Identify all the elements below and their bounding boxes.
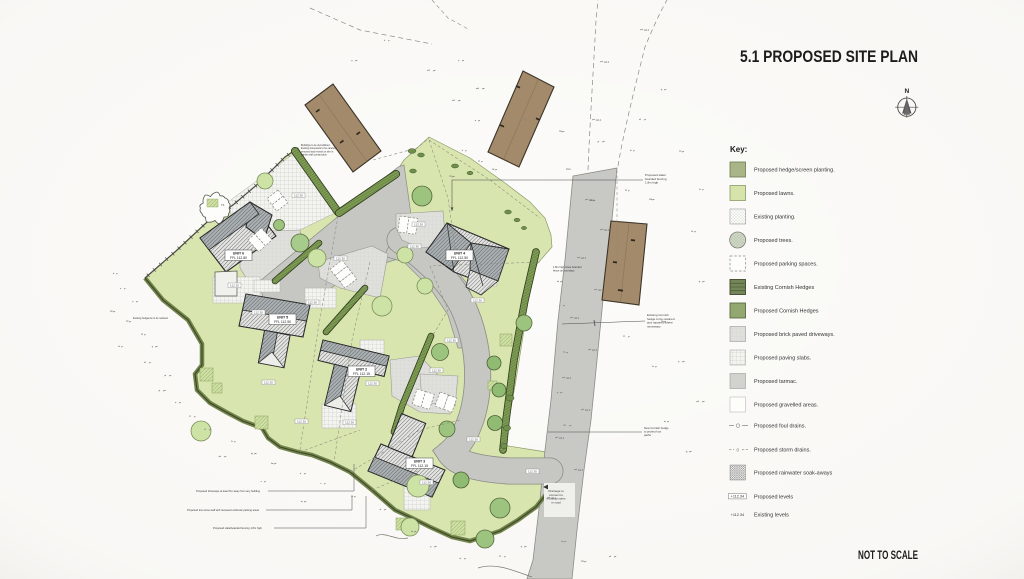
svg-text:112.30: 112.30 [414,223,423,227]
svg-text:Proposed gravelled areas.: Proposed gravelled areas. [754,403,819,409]
svg-text:T1: T1 [221,203,225,207]
svg-text:+112.34: +112.34 [731,513,745,517]
svg-text:112.4: 112.4 [574,318,580,320]
svg-text:FFL 112.15: FFL 112.15 [411,464,428,468]
svg-text:Existing levels: Existing levels [754,513,789,519]
svg-text:FFL 112.50: FFL 112.50 [451,256,468,260]
svg-text:112.30: 112.30 [447,339,456,343]
svg-text:Proposed levels: Proposed levels [754,495,793,501]
svg-text:Proposed Cornish Hedges: Proposed Cornish Hedges [754,309,819,315]
svg-text:Existing planting.: Existing planting. [754,215,796,221]
svg-text:112.4: 112.4 [581,258,587,260]
svg-text:Proposed rainwater soak-aways: Proposed rainwater soak-aways [754,471,833,477]
svg-text:112.30: 112.30 [432,369,441,373]
svg-text:Proposed slate/boarded fencing: Proposed slate/boarded fencing 1.8m high [213,526,262,530]
svg-text:112.4: 112.4 [592,350,598,352]
svg-text:Proposed foul drains.: Proposed foul drains. [754,424,806,430]
svg-text:112.4: 112.4 [604,230,610,232]
svg-text:FFL 112.50: FFL 112.50 [274,320,291,324]
svg-text:FFL 112.15: FFL 112.15 [353,372,370,376]
svg-text:112.4: 112.4 [589,200,595,202]
svg-text:Proposed brick paved driveways: Proposed brick paved driveways. [754,332,835,338]
svg-text:112.4: 112.4 [604,62,610,64]
svg-text:112.4: 112.4 [596,120,602,122]
svg-text:Proposed storm drains.: Proposed storm drains. [754,448,811,454]
svg-text:NOT TO SCALE: NOT TO SCALE [858,550,918,562]
svg-text:Proposed lawns.: Proposed lawns. [754,191,795,197]
svg-text:112.30: 112.30 [308,301,317,305]
svg-text:Existing hedgerow to be retain: Existing hedgerow to be retained [133,317,168,320]
svg-text:112.30: 112.30 [528,470,537,474]
svg-text:112.30: 112.30 [336,257,345,261]
svg-text:112.30: 112.30 [264,381,273,385]
svg-text:112.30: 112.30 [469,438,478,442]
svg-text:112.4: 112.4 [566,378,572,380]
svg-text:Ctu: Ctu [566,167,571,171]
svg-text:Proposed low stone wall with r: Proposed low stone wall with recessed ve… [187,508,260,512]
svg-text:112.30: 112.30 [473,299,482,303]
svg-text:112.30: 112.30 [345,421,354,425]
svg-text:Proposed trees.: Proposed trees. [754,238,793,244]
svg-text:Proposed driveways at least 5m: Proposed driveways at least 5m away from… [196,489,261,493]
svg-text:112.4: 112.4 [559,438,565,440]
svg-text:Proposed paving slabs.: Proposed paving slabs. [754,356,812,362]
svg-text:112.4: 112.4 [551,498,557,500]
svg-text:Key:: Key: [730,145,747,154]
svg-text:Existing Cornish Hedges: Existing Cornish Hedges [754,285,814,291]
svg-text:Proposed parking spaces.: Proposed parking spaces. [754,262,818,268]
svg-text:112.30: 112.30 [230,284,239,288]
svg-text:112.30: 112.30 [297,420,306,424]
svg-text:FFL 112.80: FFL 112.80 [230,256,247,260]
svg-text:112.30: 112.30 [422,481,431,485]
svg-text:5.1 PROPOSED SITE PLAN: 5.1 PROPOSED SITE PLAN [740,47,918,66]
svg-text:Proposed hedge/screen planting: Proposed hedge/screen planting. [754,168,835,174]
svg-text:+112.34: +112.34 [731,495,745,499]
svg-text:112.30: 112.30 [368,382,377,386]
svg-text:0: 0 [737,448,740,453]
svg-text:112.30: 112.30 [254,311,263,315]
svg-text:112.4: 112.4 [644,30,650,32]
svg-text:Proposed tarmac.: Proposed tarmac. [754,379,798,385]
svg-text:112.30: 112.30 [410,245,419,249]
svg-text:112.30: 112.30 [294,194,303,198]
svg-text:112.4: 112.4 [585,410,591,412]
svg-text:112.4: 112.4 [578,470,584,472]
svg-text:112.4: 112.4 [598,290,604,292]
svg-text:N: N [904,88,909,95]
